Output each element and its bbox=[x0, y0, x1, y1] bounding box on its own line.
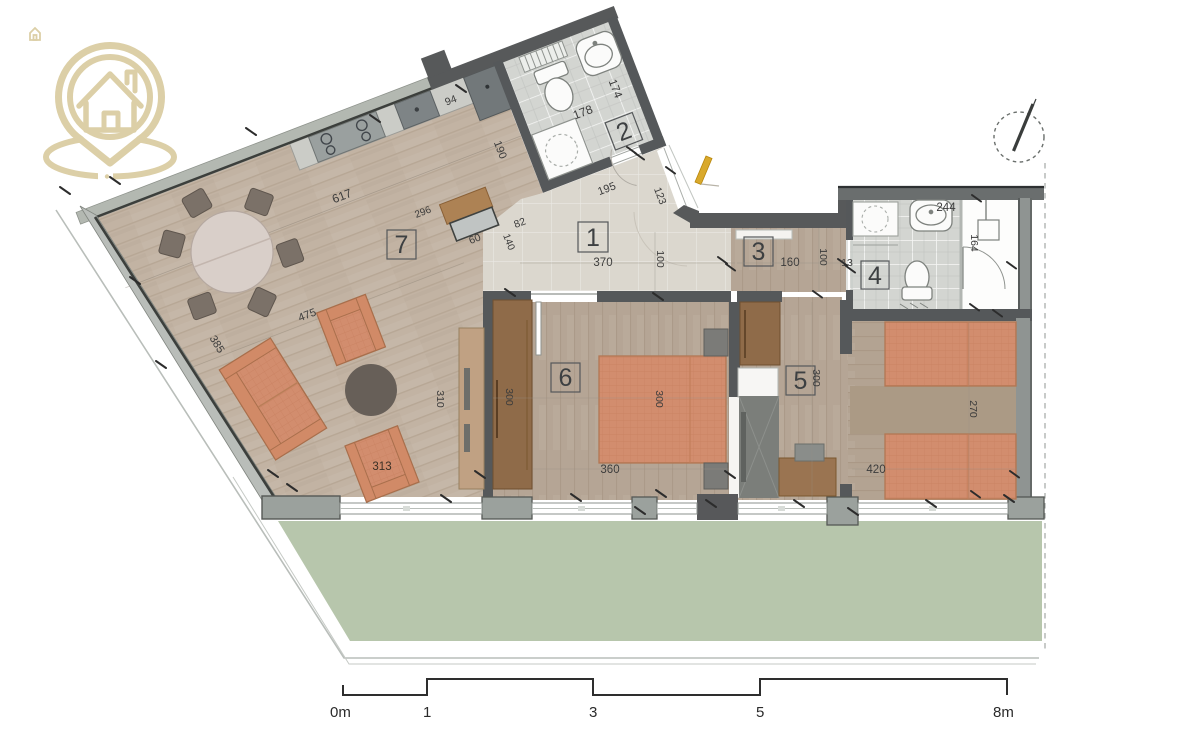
svg-text:1: 1 bbox=[586, 224, 600, 252]
svg-text:420: 420 bbox=[866, 464, 885, 476]
svg-text:300: 300 bbox=[653, 390, 665, 408]
svg-text:0m: 0m bbox=[330, 704, 351, 721]
svg-text:3: 3 bbox=[589, 704, 597, 721]
svg-text:5: 5 bbox=[794, 367, 808, 395]
svg-text:244: 244 bbox=[936, 202, 956, 214]
svg-text:7: 7 bbox=[395, 231, 409, 259]
svg-text:4: 4 bbox=[868, 262, 882, 290]
svg-text:100: 100 bbox=[654, 250, 666, 268]
svg-text:1: 1 bbox=[423, 704, 431, 721]
svg-text:164: 164 bbox=[968, 234, 980, 252]
svg-text:6: 6 bbox=[559, 364, 573, 392]
svg-text:300: 300 bbox=[503, 388, 515, 406]
svg-text:360: 360 bbox=[600, 464, 619, 476]
svg-text:5: 5 bbox=[756, 704, 764, 721]
svg-text:3: 3 bbox=[752, 238, 766, 266]
svg-text:313: 313 bbox=[372, 461, 391, 473]
svg-text:310: 310 bbox=[434, 390, 446, 408]
svg-text:8m: 8m bbox=[993, 704, 1014, 721]
